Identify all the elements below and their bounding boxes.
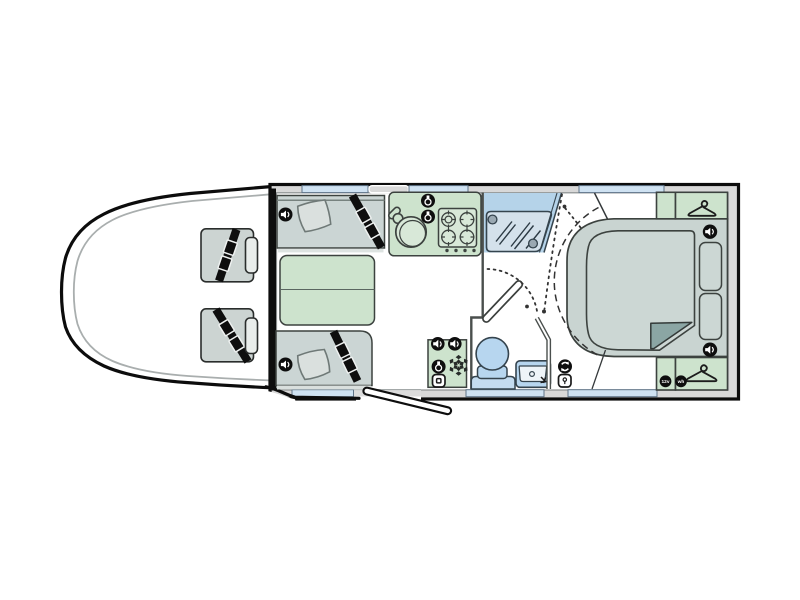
svg-text:12v: 12v	[661, 379, 669, 385]
svg-text:wh: wh	[677, 379, 685, 385]
